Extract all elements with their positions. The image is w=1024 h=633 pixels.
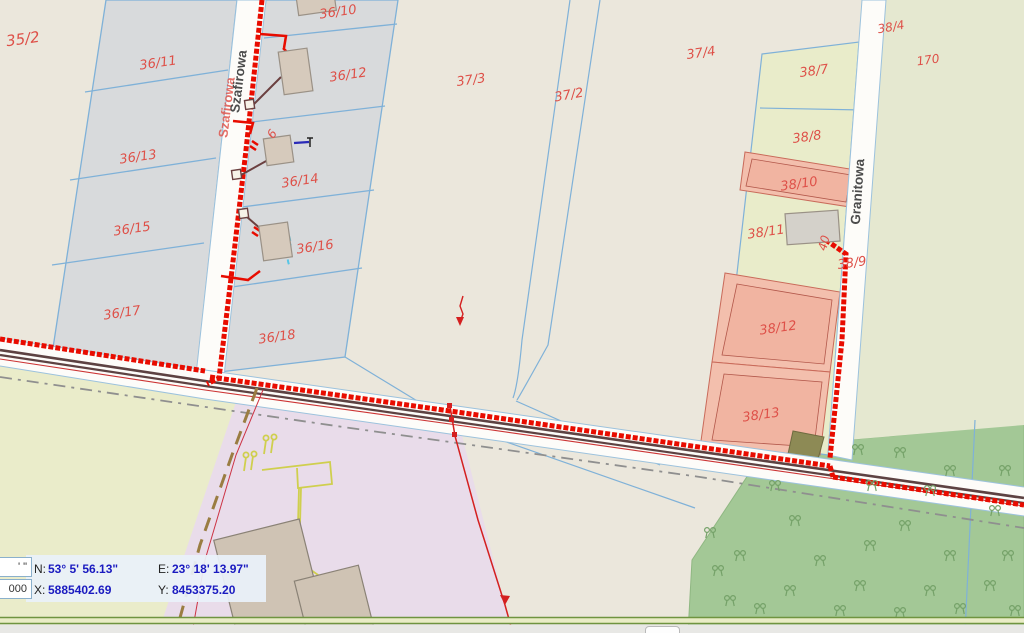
x-value: 5885402.69 (48, 579, 111, 601)
well-icon (238, 208, 248, 218)
map-canvas[interactable]: Szafirowa Szafirowa Granitowa 35/2 36/11… (0, 0, 1024, 633)
building (278, 48, 313, 95)
well-icon (231, 169, 241, 179)
y-value: 8453375.20 (172, 579, 235, 601)
bottom-panel-toggle[interactable] (645, 626, 680, 633)
building (259, 222, 293, 261)
x-label: X: (34, 579, 45, 601)
bottom-band (0, 618, 1024, 633)
xy-coordinate-row: X: 5885402.69 Y: 8453375.20 (26, 579, 266, 601)
e-label: E: (158, 558, 169, 580)
coordinate-status-panel: N: 53° 5' 56.13" E: 23° 18' 13.97" X: 58… (26, 555, 266, 602)
n-label: N: (34, 558, 46, 580)
cable-blue (294, 142, 309, 143)
y-label: Y: (158, 579, 169, 601)
map-layers: Szafirowa Szafirowa Granitowa 35/2 36/11… (0, 0, 1024, 633)
n-value: 53° 5' 56.13" (48, 558, 118, 580)
geo-coordinate-row: N: 53° 5' 56.13" E: 23° 18' 13.97" (26, 558, 266, 580)
building (263, 135, 293, 165)
well-icon (244, 99, 254, 109)
coordinate-format-input[interactable]: ' " (0, 557, 32, 577)
scale-input[interactable]: 000 (0, 579, 32, 599)
e-value: 23° 18' 13.97" (172, 558, 249, 580)
